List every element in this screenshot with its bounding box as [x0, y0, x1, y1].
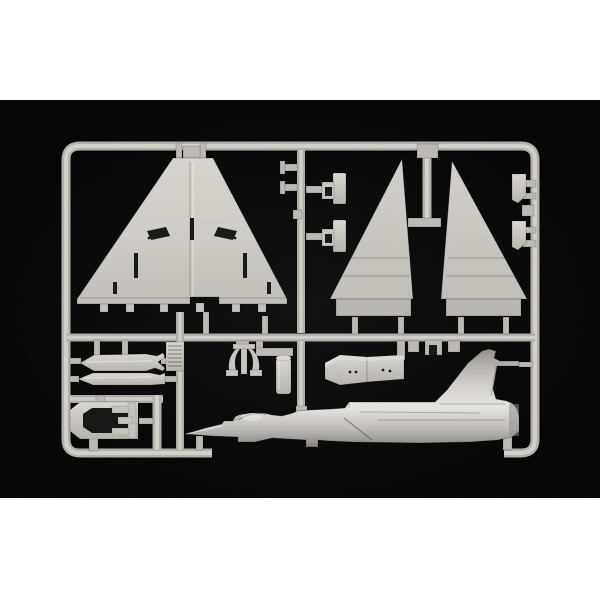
- sprue-photo: [0, 100, 600, 498]
- photo-grain: [0, 100, 600, 498]
- sprue-photo-canvas: [0, 100, 600, 498]
- page: [0, 0, 600, 600]
